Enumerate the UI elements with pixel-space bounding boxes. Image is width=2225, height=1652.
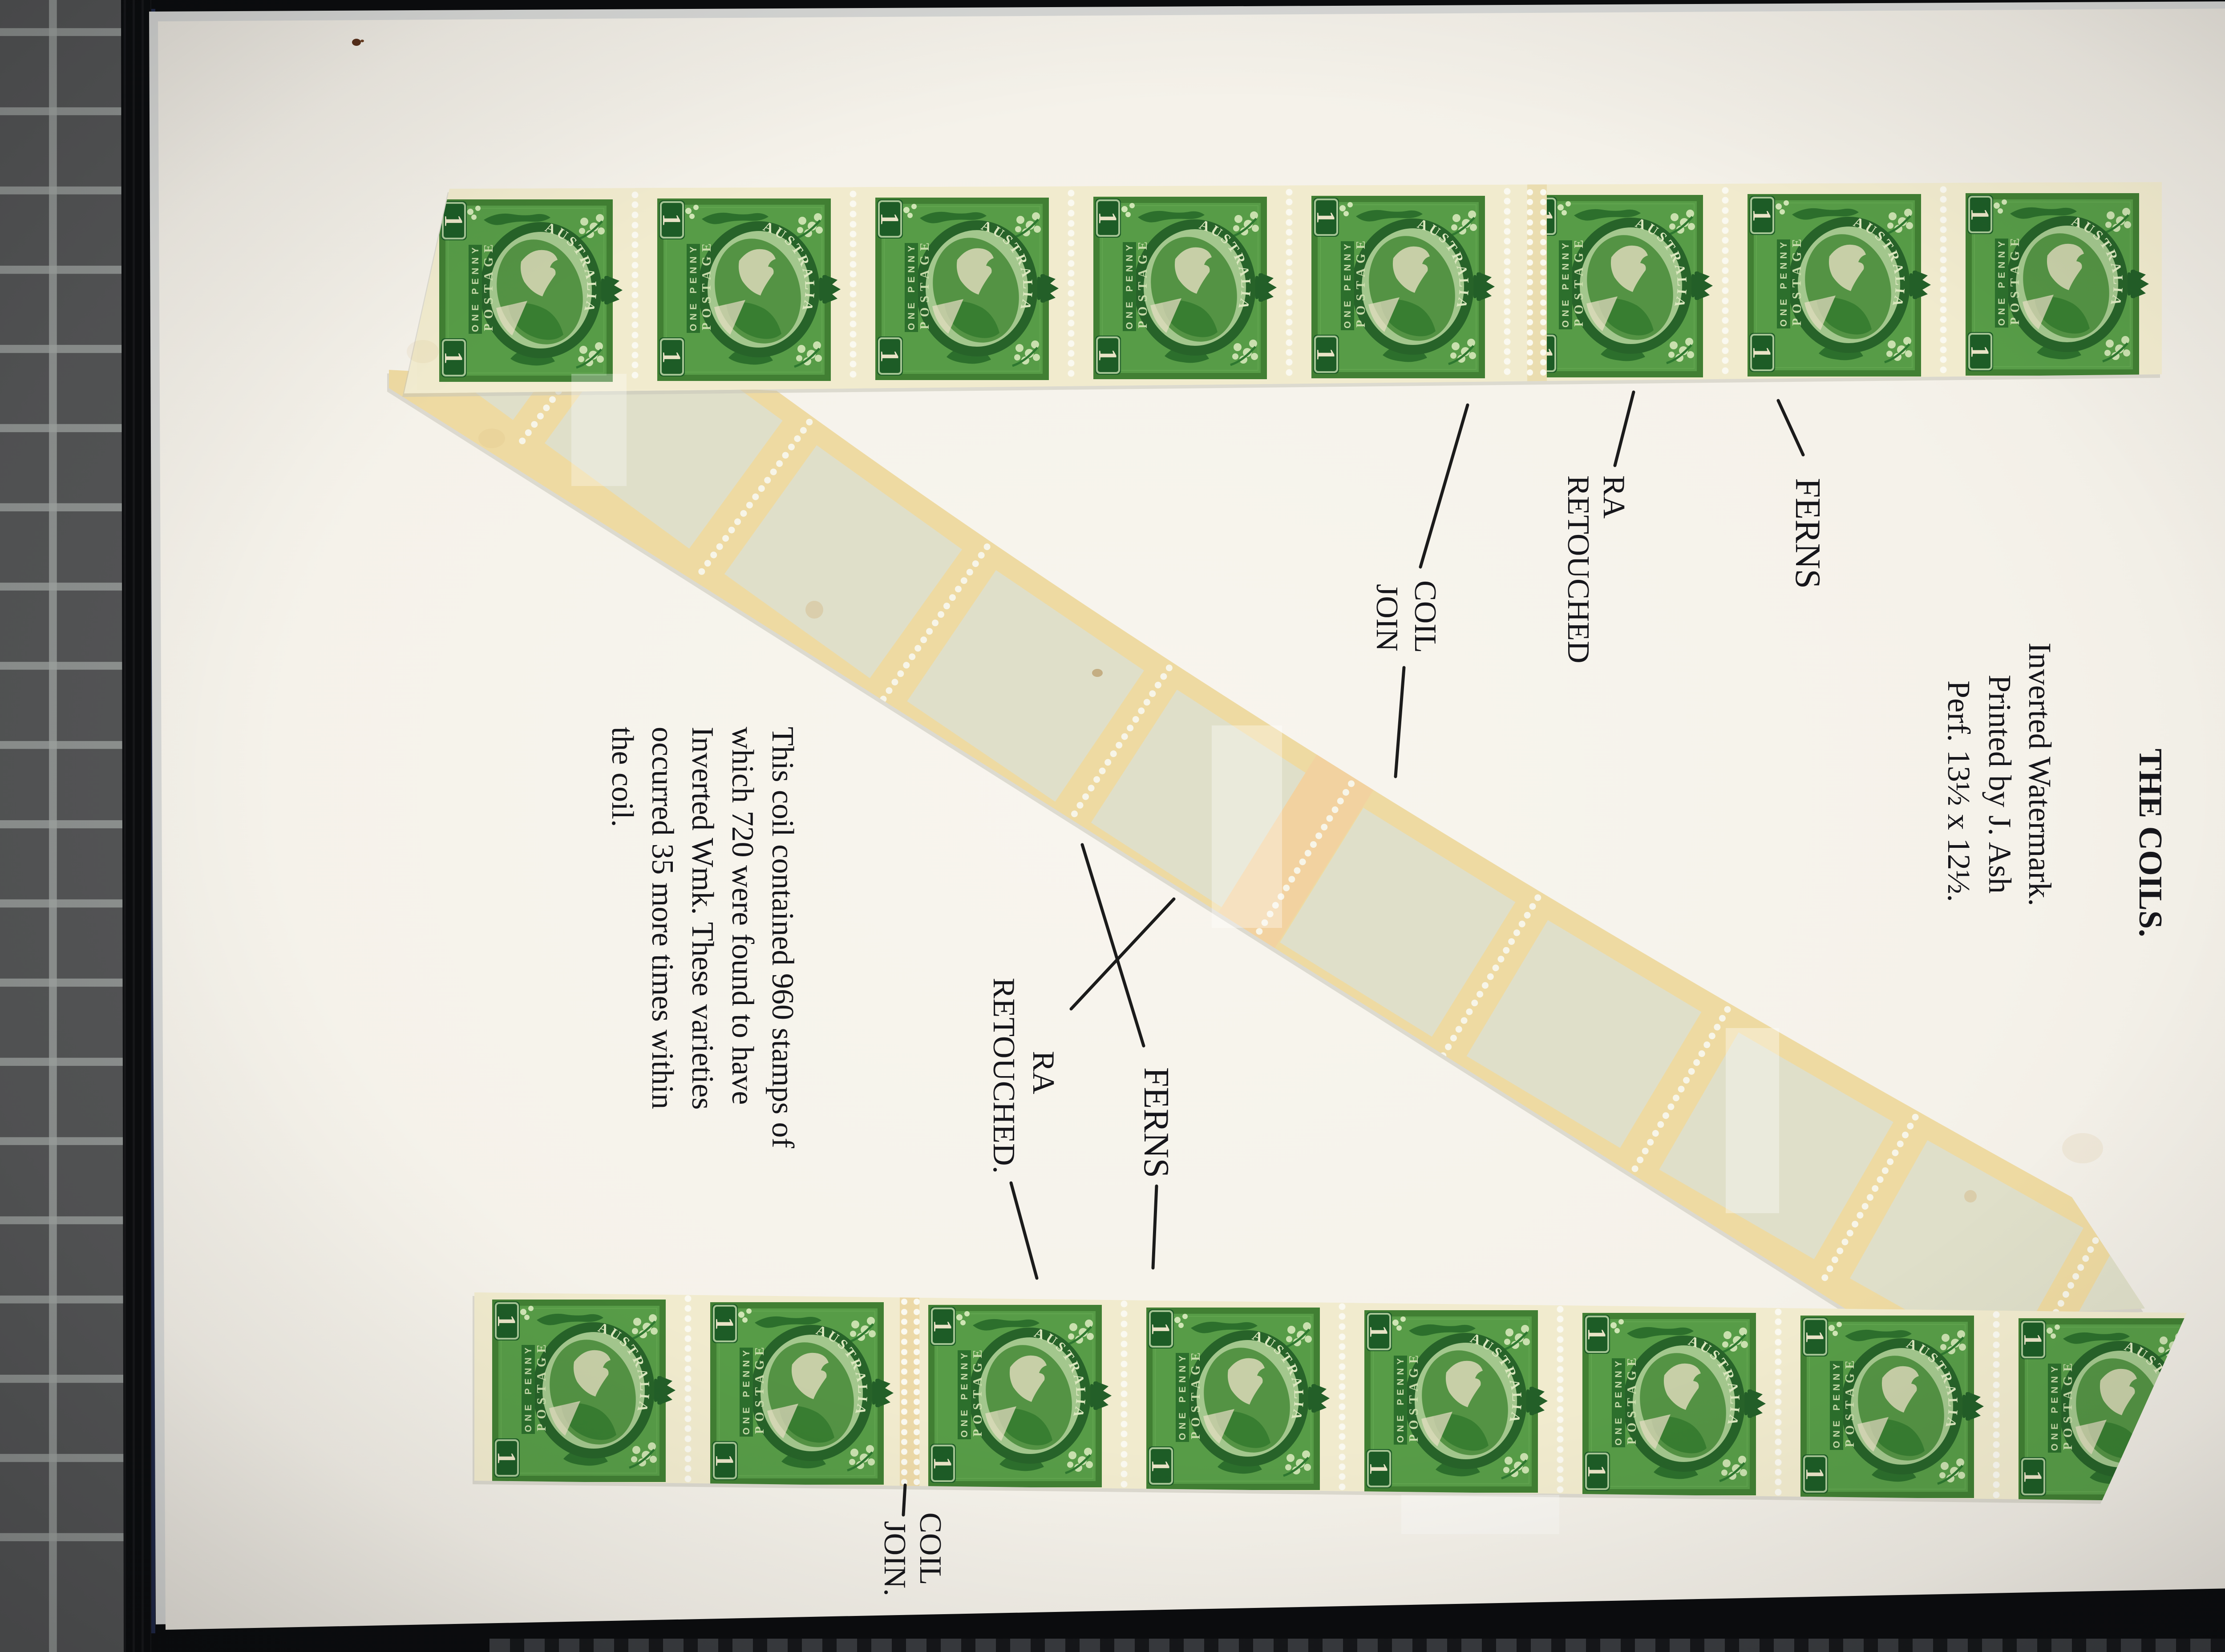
svg-text:COIL: COIL bbox=[1408, 580, 1442, 653]
svg-text:RETOUCHED.: RETOUCHED. bbox=[987, 978, 1021, 1174]
svg-text:occurred 35 more times within: occurred 35 more times within bbox=[645, 727, 680, 1109]
svg-text:JOIN: JOIN bbox=[1370, 584, 1404, 652]
svg-text:COIL: COIL bbox=[913, 1512, 947, 1585]
svg-text:Inverted Wmk. These varieties: Inverted Wmk. These varieties bbox=[685, 727, 720, 1109]
svg-text:RA: RA bbox=[1597, 475, 1631, 519]
svg-text:Perf. 13½ x 12½.: Perf. 13½ x 12½. bbox=[1941, 680, 1977, 902]
svg-text:which 720 were found to have: which 720 were found to have bbox=[725, 727, 760, 1105]
svg-text:RETOUCHED: RETOUCHED bbox=[1561, 475, 1595, 664]
svg-text:the coil.: the coil. bbox=[605, 727, 639, 827]
svg-text:FERNS: FERNS bbox=[1788, 478, 1827, 589]
svg-text:JOIN.: JOIN. bbox=[878, 1521, 912, 1596]
svg-text:FERNS: FERNS bbox=[1137, 1067, 1176, 1178]
svg-text:Inverted Watermark.: Inverted Watermark. bbox=[2022, 643, 2058, 907]
svg-text:Printed by J. Ash: Printed by J. Ash bbox=[1982, 675, 2018, 894]
svg-text:This coil contained 960 stamps: This coil contained 960 stamps of bbox=[765, 727, 800, 1148]
svg-text:THE COILS.: THE COILS. bbox=[2132, 749, 2168, 937]
svg-text:RA: RA bbox=[1026, 1051, 1060, 1094]
